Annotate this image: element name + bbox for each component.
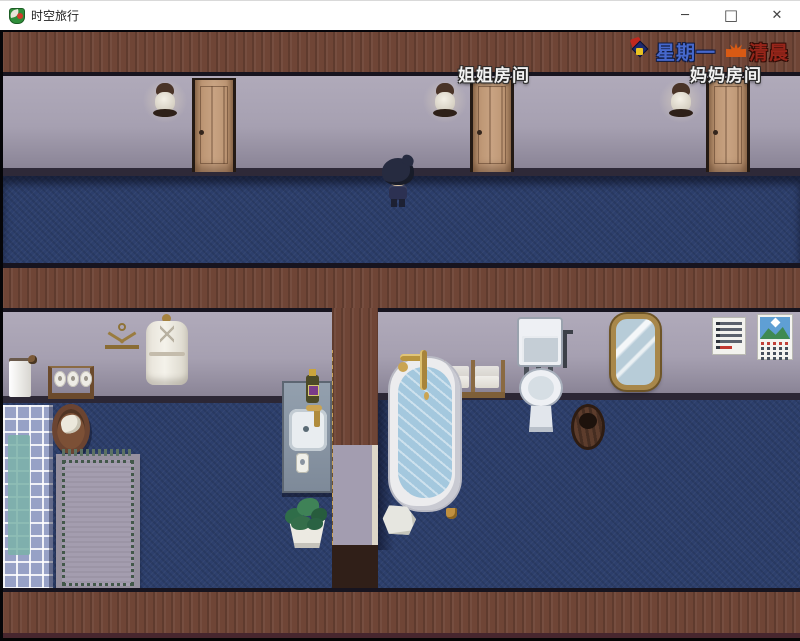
potted-plant (283, 498, 331, 550)
app-icon (9, 8, 25, 24)
close-icon: ✕ (772, 8, 783, 23)
divider-wall-top (332, 308, 378, 448)
minimize-icon: ─ (681, 8, 689, 23)
laundry-basket (52, 404, 90, 454)
divider-wall-face (332, 445, 378, 545)
shampoo-bottle (306, 375, 319, 403)
close-button[interactable]: ✕ (754, 1, 800, 31)
soap-dispenser (296, 453, 309, 473)
door-knob (477, 130, 482, 135)
player-character[interactable] (382, 158, 414, 208)
day-gem-icon (630, 38, 650, 58)
wall-hook (28, 355, 37, 364)
clothes-hanger (105, 323, 139, 351)
window-title: 时空旅行 (31, 7, 79, 24)
tub-foot-right (446, 508, 457, 519)
title-bar[interactable]: 时空旅行 ─ □ ✕ (0, 0, 800, 30)
left-black-edge (0, 30, 3, 641)
notice-poster (712, 317, 746, 355)
door-left[interactable] (192, 78, 236, 172)
room-label-mom: 妈妈房间 (690, 61, 762, 86)
wall-mirror (611, 314, 660, 390)
wall-lamp-2 (432, 83, 458, 119)
game-viewport[interactable]: 星期一 清晨 姐姐房间 妈妈房间 (0, 30, 800, 641)
bathrobe (146, 314, 188, 388)
divider-wall-shadow (332, 545, 378, 592)
toilet-tank (517, 317, 563, 367)
hand-towel (9, 361, 31, 397)
toilet-paper-shelf (48, 366, 94, 399)
wall-lamp-3 (668, 83, 694, 119)
character-body (389, 185, 407, 200)
bath-towel-2 (475, 366, 499, 388)
wall-lamp-1 (152, 83, 178, 119)
minimize-button[interactable]: ─ (662, 1, 708, 31)
maximize-icon: □ (724, 6, 738, 24)
lower-wall-band (0, 268, 800, 308)
room-label-sister: 姐姐房间 (458, 61, 530, 86)
wall-calendar (757, 314, 793, 360)
icon-dot (17, 13, 23, 19)
door-knob (713, 130, 718, 135)
tub-faucet (398, 348, 438, 400)
bottom-wall-band (0, 592, 800, 633)
sink-faucet (314, 405, 320, 427)
toilet-bowl (519, 368, 563, 440)
window-controls: ─ □ ✕ (662, 1, 800, 31)
flush-lever (563, 330, 567, 368)
maximize-button[interactable]: □ (708, 1, 754, 31)
laundry-cloth (59, 413, 82, 435)
sink-basin (289, 409, 327, 451)
door-sister-room[interactable] (470, 78, 514, 172)
door-knob (199, 130, 204, 135)
door-mom-room[interactable] (706, 78, 750, 172)
wooden-bucket (571, 404, 605, 450)
app-window: 时空旅行 ─ □ ✕ 星期一 清晨 姐姐房间 妈妈房间 (0, 0, 800, 641)
bath-rug (56, 454, 140, 592)
shower-drain-area (8, 435, 30, 555)
